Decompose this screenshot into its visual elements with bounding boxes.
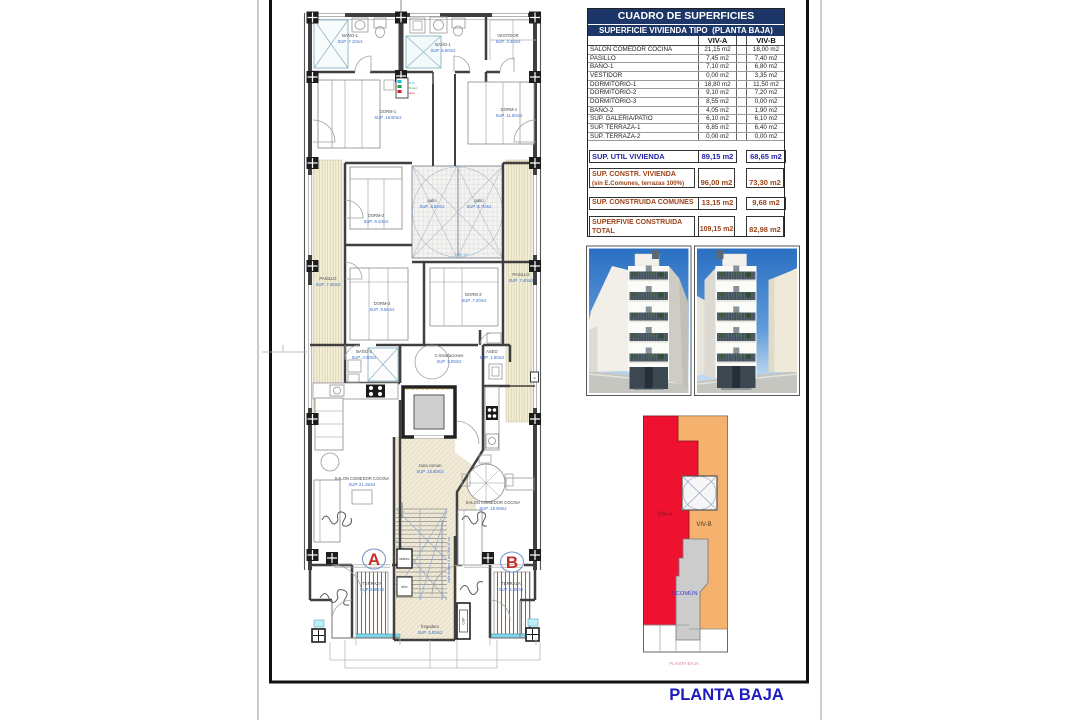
svg-text:C-instalaciones: C-instalaciones [435,353,464,358]
svg-text:SUP. 6.85m2: SUP. 6.85m2 [360,587,385,592]
svg-text:BAÑO-1: BAÑO-1 [342,33,358,38]
svg-text:SUP. 21.15m2: SUP. 21.15m2 [349,482,376,487]
svg-text:SUP .5.?0m2: SUP .5.?0m2 [467,204,492,209]
svg-text:SUP .18.80m2: SUP .18.80m2 [374,115,402,120]
svg-text:SUP .5.00m2: SUP .5.00m2 [437,359,462,364]
svg-text:SUP .7.20m2: SUP .7.20m2 [462,298,487,303]
svg-text:sube escalera 4 m 0.30m 32 cm: sube escalera 4 m 0.30m 32 cm [447,537,451,583]
svg-text:BAÑO-2: BAÑO-2 [356,349,372,354]
svg-text:R.itv: R.itv [409,81,416,85]
svg-text:fregadero: fregadero [421,624,440,629]
svg-text:PASILLO: PASILLO [319,276,337,281]
svg-text:SUP .1.90m2: SUP .1.90m2 [480,355,505,360]
svg-text:SUP .5.00m2: SUP .5.00m2 [418,630,443,635]
svg-text:A: A [368,550,380,569]
svg-text:B: B [506,553,518,572]
svg-text:VIV-B: VIV-B [696,522,711,528]
svg-text:SUP .9.55m2: SUP .9.55m2 [370,307,395,312]
svg-text:DORM-2´: DORM-2´ [465,292,484,297]
svg-text:patio: patio [427,198,437,203]
svg-text:SALON COMEDOR COCINA: SALON COMEDOR COCINA [466,500,521,505]
svg-text:DORM-2: DORM-2 [368,213,385,218]
svg-text:ladeco: ladeco [400,557,410,561]
svg-text:SUP .15.80m2: SUP .15.80m2 [416,469,444,474]
svg-text:SUP .5.50m2: SUP .5.50m2 [420,204,445,209]
svg-text:DORM-3: DORM-3 [374,301,391,306]
svg-text:BAÑO-1: BAÑO-1 [435,42,451,47]
svg-text:SALON COMEDOR COCINA: SALON COMEDOR COCINA [335,476,390,481]
svg-text:CGP: CGP [462,618,466,625]
svg-text:↑ NNE m²: ↑ NNE m² [452,253,468,257]
svg-text:SUP .6.80m2: SUP .6.80m2 [431,48,456,53]
svg-text:SUP .4.00m2: SUP .4.00m2 [352,355,377,360]
svg-text:SUP .18.00m2: SUP .18.00m2 [479,506,507,511]
svg-text:SUP .11.50m2: SUP .11.50m2 [496,113,524,118]
svg-text:SUP .9.10m2: SUP .9.10m2 [364,219,389,224]
svg-text:TERRAZA: TERRAZA [362,581,382,586]
svg-text:DORM-1: DORM-1 [380,109,397,114]
svg-text:N.vert: N.vert [409,86,417,90]
svg-text:SUP. 6.40m2: SUP. 6.40m2 [499,587,524,592]
svg-text:SUP .7.10m2: SUP .7.10m2 [338,39,363,44]
svg-text:SUP .7.40m2: SUP .7.40m2 [509,278,534,283]
svg-text:s: s [534,375,536,380]
svg-text:sism: sism [409,91,416,95]
svg-text:Z.COMÚN: Z.COMÚN [670,590,697,597]
svg-text:zona comun: zona comun [419,463,442,468]
svg-text:refrigerador: refrigerador [400,501,404,518]
svg-text:DORM-1: DORM-1 [501,107,518,112]
svg-text:VESTIDOR: VESTIDOR [497,33,518,38]
svg-text:SUP .3.35m2: SUP .3.35m2 [496,39,521,44]
svg-text:elec: elec [401,585,408,589]
svg-text:patio: patio [474,198,484,203]
svg-text:ASEO: ASEO [486,349,498,354]
svg-text:VIV-A: VIV-A [657,512,672,518]
svg-text:PLANTA BAJA: PLANTA BAJA [669,661,698,666]
svg-text:PASILLO: PASILLO [512,272,530,277]
svg-text:SUP .7.45m2: SUP .7.45m2 [316,282,341,287]
svg-text:TERRAZA: TERRAZA [501,581,521,586]
